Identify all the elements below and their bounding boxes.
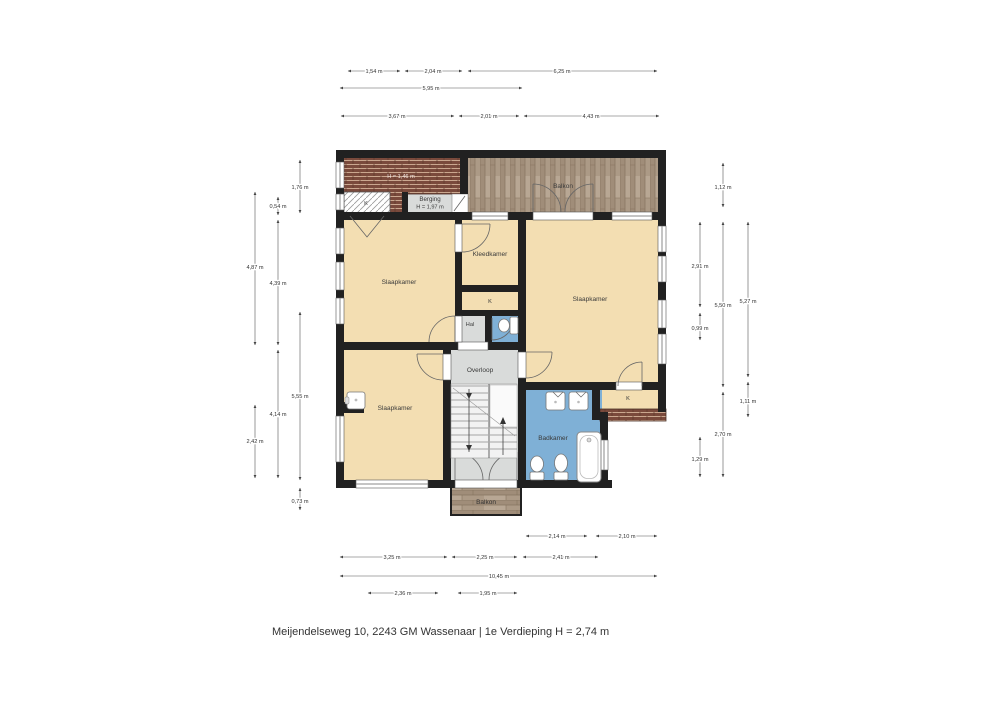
dim-label: 0,54 m [269,204,286,210]
dim-label: 1,95 m [479,591,496,597]
dim-label: 2,01 m [480,114,497,120]
bathroom-toilet [530,456,544,480]
closet-mid-label: K [488,299,492,305]
dim-label: 4,14 m [269,412,286,418]
dim-label: 4,43 m [582,114,599,120]
slaapkamer-right-label: Slaapkamer [573,296,609,303]
room-slaapkamer-bottom [340,346,447,484]
slaapkamer-left-label: Slaapkamer [382,279,418,286]
dim-label: 1,76 m [291,185,308,191]
roof-strip-right [600,409,666,421]
dim-label: 2,04 m [424,69,441,75]
dim-label: 3,67 m [388,114,405,120]
dim-label: 0,73 m [291,499,308,505]
dim-label: 1,29 m [691,457,708,463]
dim-label: 5,50 m [714,303,731,309]
badkamer-label: Badkamer [538,435,568,442]
dim-label: 5,95 m [422,86,439,92]
dim-label: 2,10 m [618,534,635,540]
overloop-label: Overloop [467,367,494,374]
dim-label: 1,11 m [740,399,757,405]
page-title: Meijendelseweg 10, 2243 GM Wassenaar | 1… [272,626,609,638]
dim-label: 2,14 m [548,534,565,540]
roof-height-label: H = 1,46 m [387,174,415,180]
dim-label: 1,54 m [365,69,382,75]
kleedkamer-label: Kleedkamer [473,251,509,258]
dim-label: 2,70 m [714,432,731,438]
bathroom-bidet [554,454,568,480]
dim-label: 2,36 m [394,591,411,597]
dim-label: 2,25 m [476,555,493,561]
dim-label: 10,45 m [489,574,510,580]
dim-label: 2,91 m [691,264,708,270]
sink-fixture [345,392,365,409]
berging-label: Berging [419,196,441,203]
floor-plan-page: 1,54 m 2,04 m 6,25 m 5,95 m 3,67 m 2,01 … [0,0,1000,707]
dim-label: 1,12 m [714,185,731,191]
dim-label: 2,42 m [246,439,263,445]
berging-height-label: H = 1,97 m [416,205,444,211]
dim-label: 5,55 m [291,394,308,400]
hal-label: Hal [466,322,474,328]
balkon-top-label: Balkon [553,183,573,190]
dim-label: 4,87 m [246,265,263,271]
dim-label: 0,99 m [691,326,708,332]
closet-top-label: K [364,201,368,207]
dim-label: 2,41 m [552,555,569,561]
slaapkamer-bottom-label: Slaapkamer [378,405,414,412]
closet-right-label: K [626,396,630,402]
bathtub-fixture [577,432,601,482]
dim-label: 5,27 m [739,299,756,305]
stairs [451,384,517,458]
dim-label: 4,39 m [269,281,286,287]
dim-label: 3,25 m [383,555,400,561]
floor-plan-drawing: 1,54 m 2,04 m 6,25 m 5,95 m 3,67 m 2,01 … [0,0,1000,707]
dim-label: 6,25 m [553,69,570,75]
balkon-bottom-label: Balkon [476,499,496,506]
